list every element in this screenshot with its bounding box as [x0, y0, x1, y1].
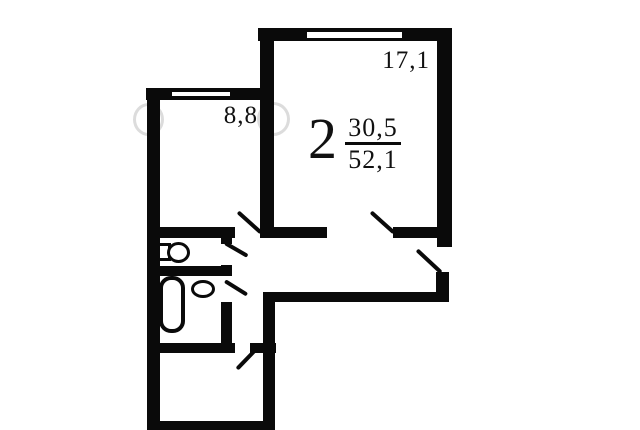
door-swing-wc [224, 241, 249, 257]
total-area-value: 52,1 [348, 146, 398, 173]
door-swing-bathroom [224, 279, 248, 296]
window-small-room [172, 90, 230, 98]
bathtub-icon [159, 276, 185, 333]
sink-icon [191, 280, 215, 298]
wall-left-outer [147, 88, 160, 430]
apartment-rooms-count: 2 [308, 112, 337, 165]
door-swing-small-room [237, 211, 263, 235]
wall-wc-right-mid [221, 265, 232, 276]
apartment-area-fraction: 30,5 52,1 [345, 114, 401, 174]
wall-corridor-bottom [263, 292, 448, 302]
wall-living-left [260, 28, 274, 238]
door-swing-hall [236, 347, 259, 371]
wall-hall-right [263, 292, 275, 430]
window-living-room [307, 30, 402, 40]
door-swing-living-room [370, 211, 396, 235]
toilet-bowl-icon [167, 242, 190, 263]
wall-living-right-upper [437, 28, 452, 247]
small-room-area-label: 8,8 [190, 102, 258, 130]
wall-wc-bath-divider [147, 266, 222, 276]
apartment-summary-label: 2 30,5 52,1 [308, 112, 401, 174]
wall-bath-bottom [147, 343, 235, 353]
wall-bottom [147, 421, 275, 430]
wall-corridor-top-right [393, 227, 437, 238]
floor-plan: 17,1 8,8 2 30,5 52,1 [0, 0, 640, 430]
door-swing-entrance [416, 249, 443, 274]
wall-corridor-top-left [260, 227, 327, 238]
living-area-value: 30,5 [348, 114, 398, 141]
living-room-area-label: 17,1 [350, 47, 430, 75]
